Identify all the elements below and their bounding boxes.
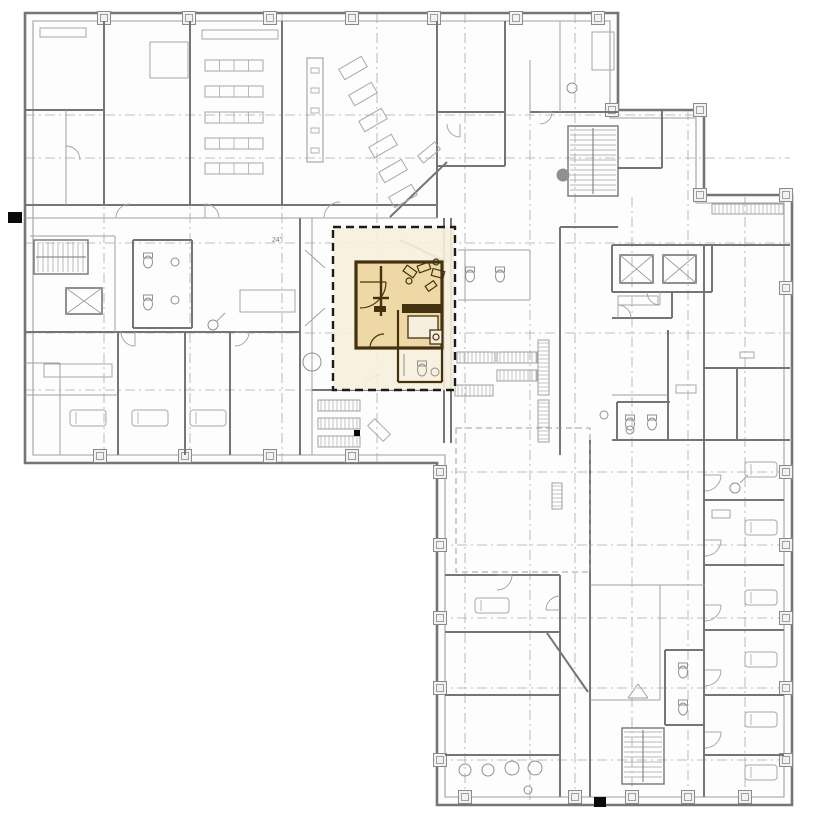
highlighted-unit[interactable] (333, 227, 455, 390)
floor-plan-drawing: 24' (0, 0, 826, 826)
dimension-label: 24' (272, 237, 281, 244)
floor-plan-page: 24' (0, 0, 826, 826)
